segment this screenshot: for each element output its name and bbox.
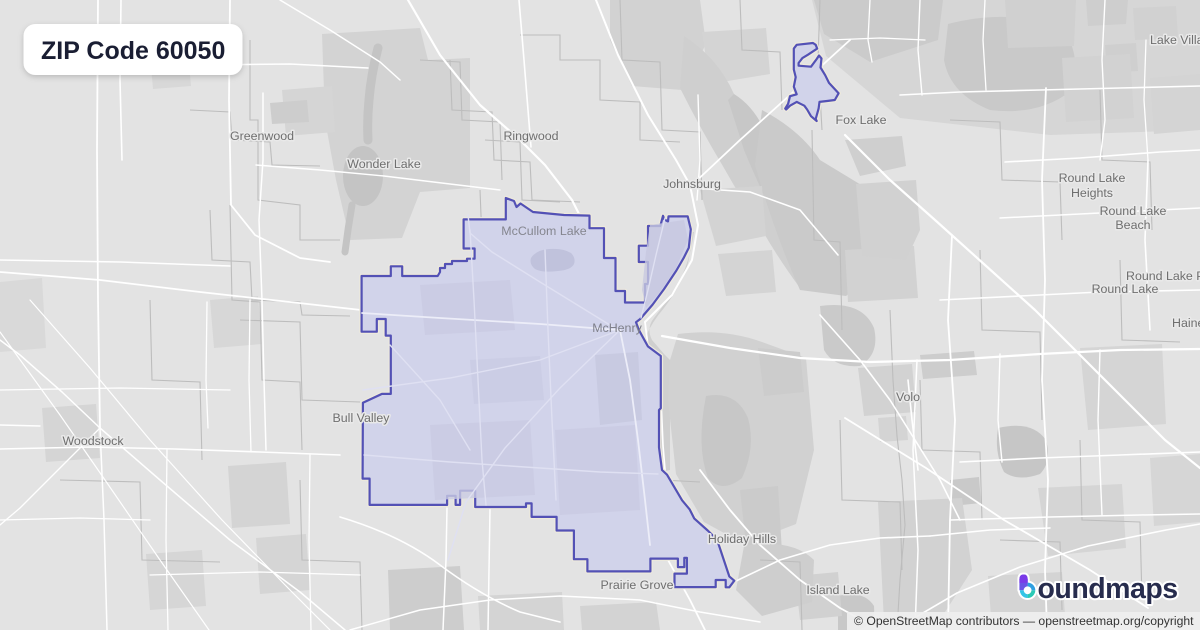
svg-text:Johnsburg: Johnsburg: [663, 177, 721, 191]
svg-text:Round Lake Pk: Round Lake Pk: [1126, 269, 1200, 283]
svg-text:oundmaps: oundmaps: [1038, 573, 1178, 605]
svg-text:Round Lake: Round Lake: [1100, 204, 1167, 218]
svg-text:© OpenStreetMap contributors —: © OpenStreetMap contributors — openstree…: [854, 614, 1194, 628]
svg-text:Ringwood: Ringwood: [503, 129, 558, 143]
svg-text:Fox Lake: Fox Lake: [836, 113, 887, 127]
svg-text:Woodstock: Woodstock: [62, 434, 124, 448]
svg-text:Wonder Lake: Wonder Lake: [347, 157, 421, 171]
svg-text:Volo: Volo: [896, 390, 920, 404]
svg-text:McCullom Lake: McCullom Lake: [501, 224, 586, 238]
svg-text:Holiday Hills: Holiday Hills: [708, 532, 776, 546]
svg-text:ZIP Code 60050: ZIP Code 60050: [41, 37, 225, 65]
svg-text:Lake Villa: Lake Villa: [1150, 33, 1200, 47]
svg-text:Greenwood: Greenwood: [230, 129, 294, 143]
svg-text:Bull Valley: Bull Valley: [333, 411, 391, 425]
svg-text:Island Lake: Island Lake: [806, 583, 869, 597]
svg-text:Heights: Heights: [1071, 186, 1113, 200]
svg-text:Prairie Grove: Prairie Grove: [601, 578, 674, 592]
svg-text:Hainesville: Hainesville: [1172, 316, 1200, 330]
svg-text:McHenry: McHenry: [592, 321, 642, 335]
svg-text:Beach: Beach: [1115, 218, 1150, 232]
svg-text:Round Lake: Round Lake: [1059, 171, 1126, 185]
svg-text:Round Lake: Round Lake: [1092, 282, 1159, 296]
